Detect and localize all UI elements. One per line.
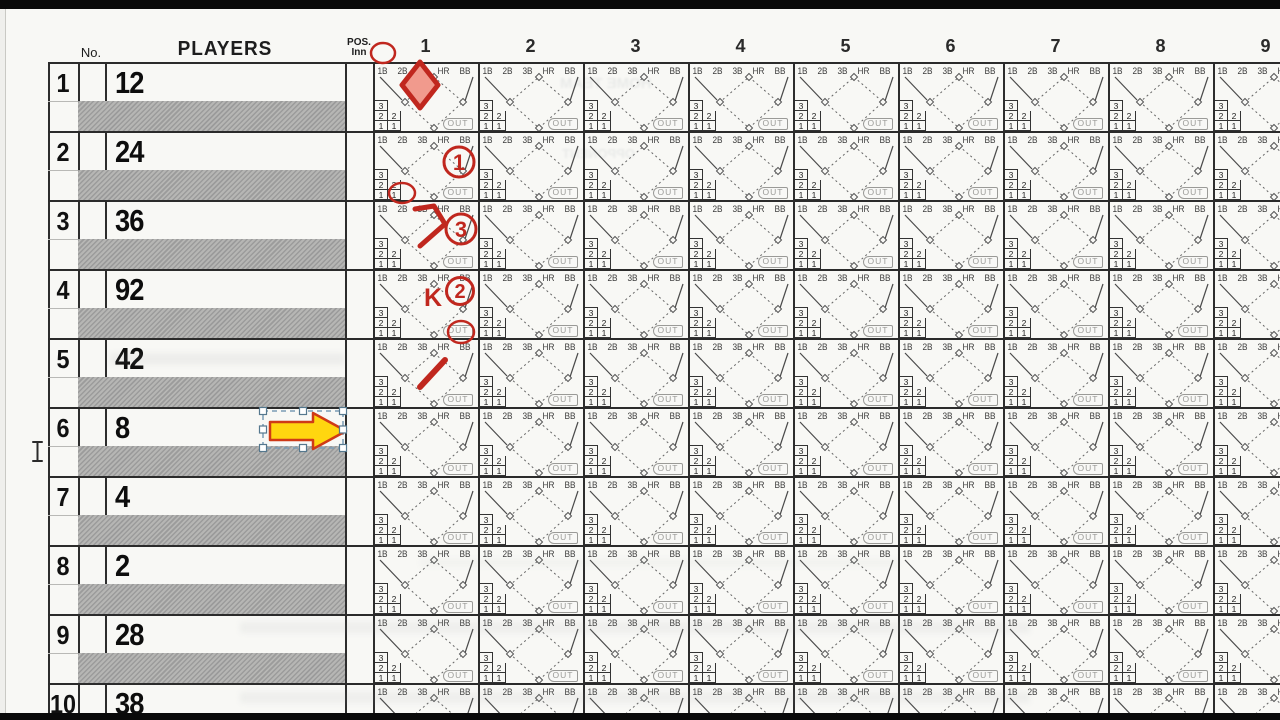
yellow-arrow-shape[interactable] [270, 413, 346, 449]
letterbox-top [0, 0, 1280, 9]
selected-arrow-object[interactable] [260, 408, 347, 452]
letterbox-bottom [0, 713, 1280, 720]
row3-hit-2b-circle [389, 183, 415, 203]
row4-strikeout: K [424, 284, 442, 312]
row4-out-number-text: 2 [454, 281, 465, 303]
selection-handle[interactable] [340, 408, 347, 415]
selection-handle[interactable] [260, 426, 267, 433]
video-frame: No. PLAYERS POS. Inn 123456789 1121B2B3B… [0, 0, 1280, 720]
selection-handle[interactable] [300, 445, 307, 452]
selection-handle[interactable] [340, 426, 347, 433]
row1-hit-1b-circle [371, 43, 395, 63]
selection-handle[interactable] [260, 445, 267, 452]
row5-walk-bb-circle [448, 321, 474, 343]
row2-out-number-text: 1 [453, 150, 465, 175]
row3-advance-path [415, 206, 445, 246]
row5-advance-path [420, 360, 445, 387]
selection-handle[interactable] [300, 408, 307, 415]
selection-handle[interactable] [260, 408, 267, 415]
row3-out-number-text: 3 [455, 217, 467, 242]
text-cursor-ibeam [33, 442, 42, 461]
selection-handle[interactable] [340, 445, 347, 452]
annotation-overlay: 13K2 [0, 0, 1280, 711]
row1-scored-diamond [402, 62, 438, 108]
